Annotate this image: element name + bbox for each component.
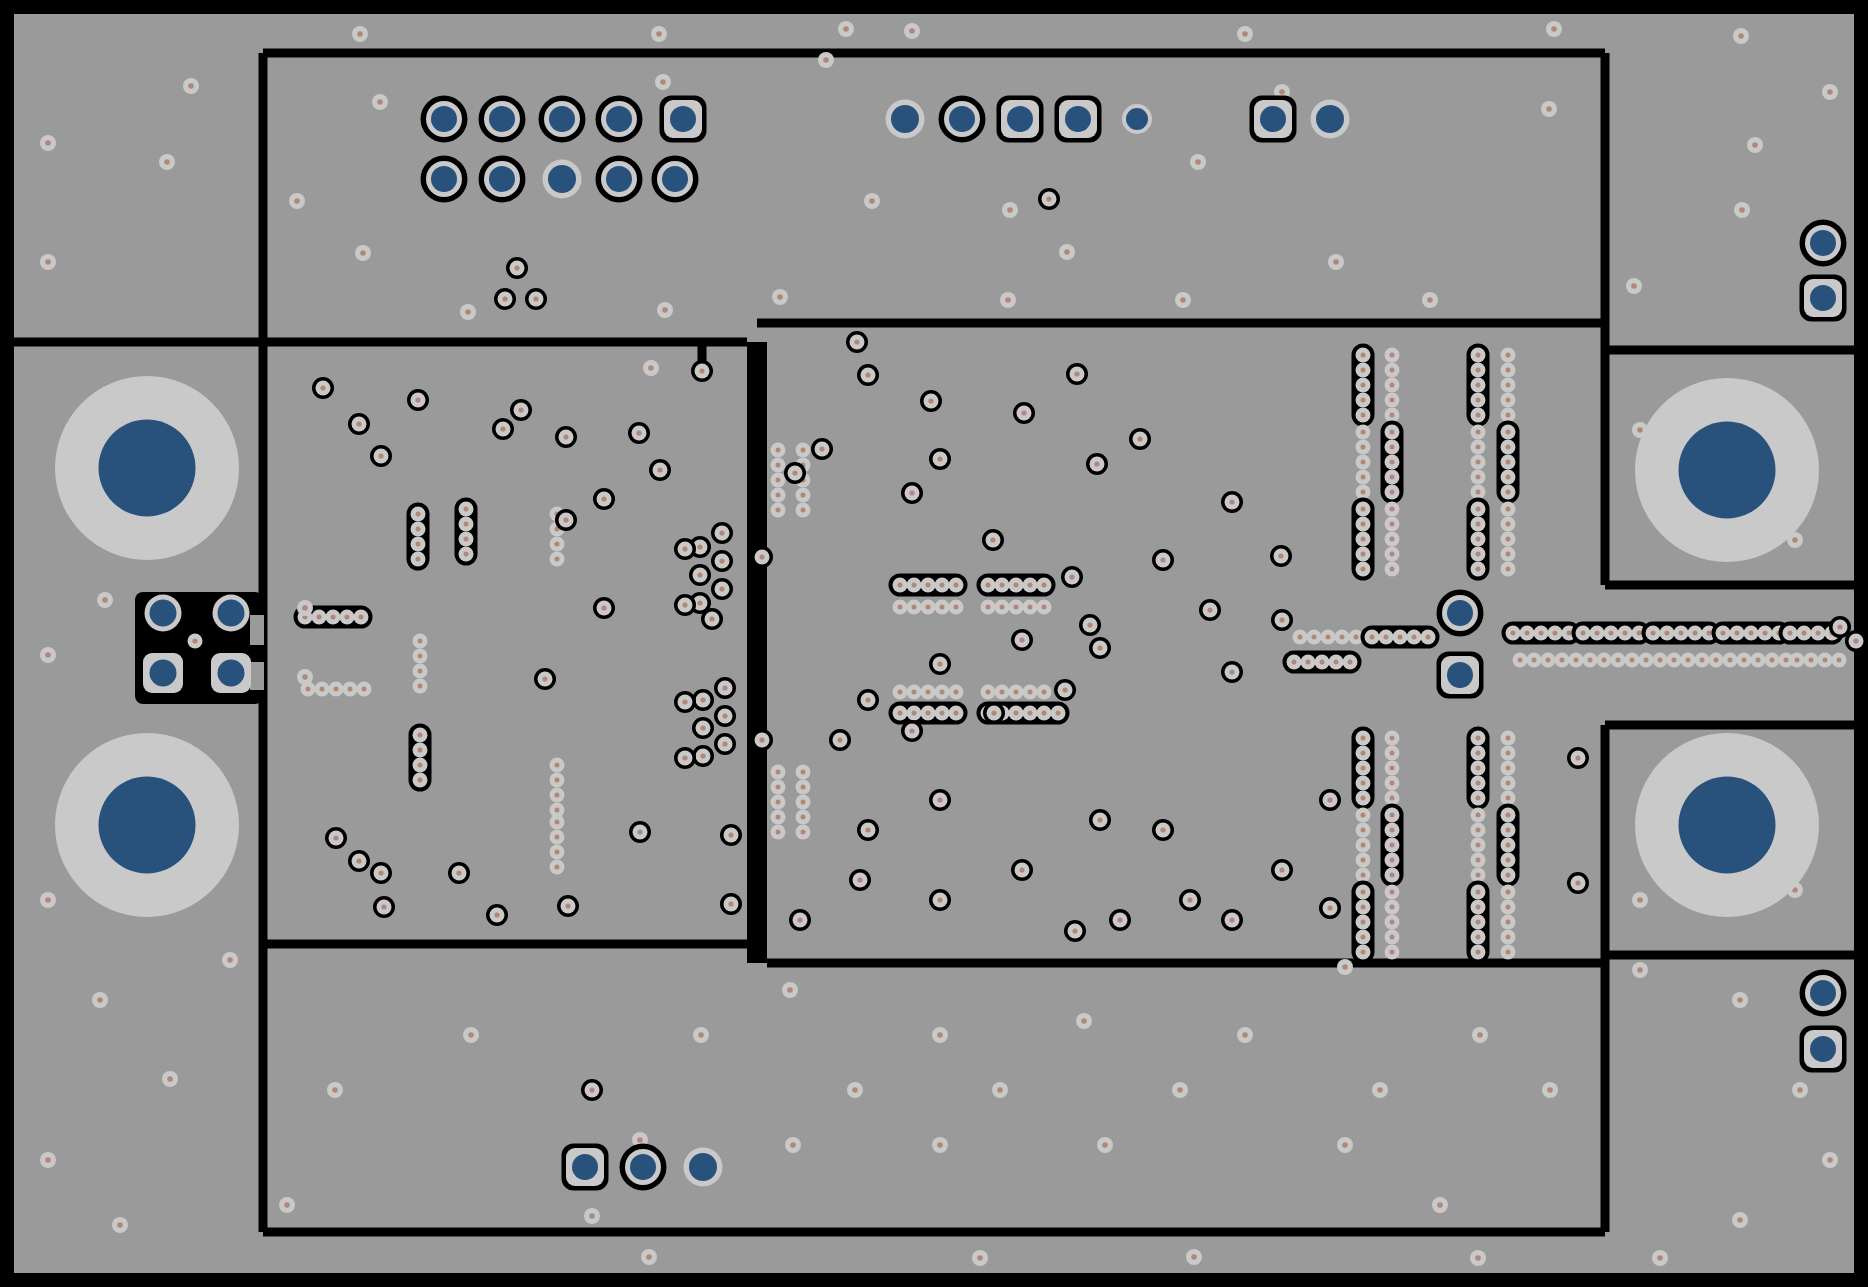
chain-via-drill (1567, 631, 1572, 636)
ring-via-drill (320, 385, 325, 390)
ring-via-drill (865, 697, 870, 702)
ring-via-drill (563, 517, 568, 522)
chain-via-drill (1476, 813, 1481, 818)
chain-via-drill (1476, 843, 1481, 848)
ring-via-drill (1021, 410, 1026, 415)
plain-via-drill (843, 26, 849, 32)
via-chain (1471, 425, 1486, 500)
plain-via-drill (1437, 1202, 1443, 1208)
pcb-layer-view[interactable] (0, 0, 1868, 1287)
chain-via-drill (418, 778, 423, 783)
plain-via-drill (1102, 1142, 1108, 1148)
chain-via-drill (1532, 658, 1537, 663)
chain-via-drill (1476, 950, 1481, 955)
ring-via-drill (1062, 687, 1067, 692)
chain-via-drill (1014, 690, 1019, 695)
chain-via-drill (464, 522, 469, 527)
ring-pad-hole (630, 1154, 656, 1180)
ring-via-drill (456, 870, 461, 875)
chain-via-drill (1602, 658, 1607, 663)
ring-via-drill (699, 368, 704, 373)
via-chain (301, 682, 372, 697)
ring-via-drill (1187, 897, 1192, 902)
chain-via-drill (1506, 413, 1511, 418)
via-chain (1501, 885, 1516, 960)
chain-via-drill (1749, 631, 1754, 636)
chain-via-drill (555, 778, 560, 783)
ring-via-drill (518, 407, 523, 412)
ring-via-drill (356, 858, 361, 863)
chain-via-drill (986, 605, 991, 610)
chain-via-drill (776, 830, 781, 835)
ring-pad-hole (431, 166, 457, 192)
plain-via-drill (1752, 142, 1758, 148)
ring-via-drill (792, 470, 797, 475)
chain-via-drill (1476, 552, 1481, 557)
chain-via-drill (801, 770, 806, 775)
plain-via-drill (1631, 283, 1637, 289)
plain-via-drill (777, 294, 783, 300)
chain-via-drill (776, 785, 781, 790)
ring-via-drill (728, 901, 733, 906)
ring-via-drill (1575, 880, 1580, 885)
plain-via-drill (164, 159, 170, 165)
chain-via-drill (898, 711, 903, 716)
chain-via-drill (1574, 658, 1579, 663)
chain-via-drill (1390, 950, 1395, 955)
ring-via-drill (722, 741, 727, 746)
chain-via-drill (1506, 751, 1511, 756)
ring-via-drill (682, 699, 687, 704)
plain-via-drill (852, 1087, 858, 1093)
chain-via-drill (416, 557, 421, 562)
chain-via-drill (1476, 537, 1481, 542)
ring-via-drill (500, 426, 505, 431)
ring-pad-hole (549, 106, 575, 132)
chain-via-drill (1326, 635, 1331, 640)
via-chain (1385, 348, 1400, 423)
plain-via-drill (377, 99, 383, 105)
chain-via-drill (1506, 828, 1511, 833)
ring-via-drill (192, 638, 197, 643)
via-chain (1653, 653, 1724, 668)
chain-via-drill (1700, 658, 1705, 663)
chain-via-drill (1056, 711, 1061, 716)
chain-via-drill (464, 552, 469, 557)
chain-via-drill (1361, 751, 1366, 756)
via-chain (1471, 808, 1486, 883)
chain-via-drill (320, 687, 325, 692)
chain-via-drill (1506, 796, 1511, 801)
connected-via-chain (407, 503, 430, 571)
plain-via-drill (1827, 89, 1833, 95)
chain-via-drill (776, 815, 781, 820)
chain-via-drill (555, 793, 560, 798)
plain-via-drill (332, 1087, 338, 1093)
chain-via-drill (1506, 398, 1511, 403)
mounting-hole-drill (1679, 422, 1776, 519)
ring-via-drill (709, 616, 714, 621)
plain-via-drill (589, 1213, 595, 1219)
chain-via-drill (1506, 736, 1511, 741)
chain-via-drill (1476, 796, 1481, 801)
ring-via-drill (1069, 574, 1074, 579)
chain-via-drill (1320, 660, 1325, 665)
plain-via-drill (1657, 1255, 1663, 1261)
ring-via-drill (1279, 617, 1284, 622)
chain-via-drill (1361, 460, 1366, 465)
chain-via-drill (1506, 873, 1511, 878)
plain-via-drill (1637, 897, 1643, 903)
chain-via-drill (555, 850, 560, 855)
plain-via-drill (1827, 1157, 1833, 1163)
chain-via-drill (1637, 631, 1642, 636)
chain-via-drill (1506, 475, 1511, 480)
ring-via-drill (1853, 638, 1858, 643)
chain-via-drill (1390, 813, 1395, 818)
chain-via-drill (464, 507, 469, 512)
chain-via-drill (317, 615, 322, 620)
plain-via-drill (302, 605, 308, 611)
chain-via-drill (1802, 631, 1807, 636)
ring-via-drill (589, 1087, 594, 1092)
plain-via-drill (360, 250, 366, 256)
cutout-square-pad-hole (150, 660, 177, 687)
chain-via-drill (1390, 430, 1395, 435)
chain-via-drill (1756, 658, 1761, 663)
connected-via-chain (1502, 622, 1581, 645)
ring-via-drill (700, 697, 705, 702)
chain-via-drill (1506, 813, 1511, 818)
chain-via-drill (555, 808, 560, 813)
chain-via-drill (801, 785, 806, 790)
chain-via-drill (1476, 905, 1481, 910)
ring-pad-hole (606, 106, 632, 132)
plain-via-drill (1333, 259, 1339, 265)
chain-via-drill (1672, 658, 1677, 663)
ring-pad-hole (606, 166, 632, 192)
chain-via-drill (1560, 658, 1565, 663)
chain-via-drill (1539, 631, 1544, 636)
chain-via-drill (1390, 552, 1395, 557)
ring-via-drill (514, 265, 519, 270)
ring-via-drill (1229, 669, 1234, 674)
plain-via-drill (660, 79, 666, 85)
plain-pad-hole (689, 1153, 717, 1181)
connected-via-chain (1352, 344, 1375, 427)
connected-via-chain (1381, 421, 1404, 504)
chain-via-drill (1361, 430, 1366, 435)
ring-via-drill (719, 586, 724, 591)
cutout-square-pad-hole (218, 660, 245, 687)
plain-via-drill (45, 897, 51, 903)
plain-via-drill (294, 198, 300, 204)
chain-via-drill (801, 830, 806, 835)
chain-via-drill (362, 687, 367, 692)
chain-via-drill (418, 684, 423, 689)
chain-via-drill (1609, 631, 1614, 636)
plain-via-drill (646, 1254, 652, 1260)
chain-via-drill (1686, 658, 1691, 663)
ring-via-drill (1575, 755, 1580, 760)
ring-via-drill (719, 558, 724, 563)
ring-via-drill (682, 755, 687, 760)
via-chain (1385, 731, 1400, 806)
plain-via-drill (102, 597, 108, 603)
chain-via-drill (1390, 522, 1395, 527)
ring-via-drill (657, 467, 662, 472)
chain-via-drill (940, 690, 945, 695)
chain-via-drill (912, 605, 917, 610)
chain-via-drill (1651, 631, 1656, 636)
ring-via-drill (1279, 867, 1284, 872)
plain-via-drill (1551, 26, 1557, 32)
ring-via-drill (990, 537, 995, 542)
chain-via-drill (1390, 828, 1395, 833)
chain-via-drill (464, 537, 469, 542)
ring-via-drill (697, 544, 702, 549)
ring-via-drill (533, 296, 538, 301)
chain-via-drill (416, 527, 421, 532)
chain-via-drill (1390, 781, 1395, 786)
chain-via-drill (1476, 475, 1481, 480)
chain-via-drill (1506, 430, 1511, 435)
connected-via-chain (1352, 881, 1375, 964)
connected-via-chain (1381, 804, 1404, 887)
chain-via-drill (898, 583, 903, 588)
chain-via-drill (1390, 507, 1395, 512)
chain-via-drill (1014, 711, 1019, 716)
chain-via-drill (1763, 631, 1768, 636)
chain-via-drill (1506, 890, 1511, 895)
chain-via-drill (1390, 751, 1395, 756)
chain-via-drill (1028, 583, 1033, 588)
chain-via-drill (1623, 631, 1628, 636)
chain-via-drill (1525, 631, 1530, 636)
chain-via-drill (1361, 935, 1366, 940)
plain-via-drill (1477, 1032, 1483, 1038)
chain-via-drill (954, 605, 959, 610)
chain-via-drill (1476, 507, 1481, 512)
chain-via-drill (776, 493, 781, 498)
chain-via-drill (331, 615, 336, 620)
ring-via-drill (378, 870, 383, 875)
chain-via-drill (1506, 567, 1511, 572)
ring-via-drill (502, 296, 507, 301)
chain-via-drill (1306, 660, 1311, 665)
via-chain (1356, 425, 1371, 500)
chain-via-drill (1361, 398, 1366, 403)
chain-via-drill (1518, 658, 1523, 663)
chain-via-drill (986, 690, 991, 695)
chain-via-drill (940, 711, 945, 716)
ring-via-drill (563, 434, 568, 439)
chain-via-drill (1028, 605, 1033, 610)
ring-via-drill (601, 496, 606, 501)
chain-via-drill (1742, 658, 1747, 663)
chain-via-drill (1511, 631, 1516, 636)
plain-via-drill (465, 309, 471, 315)
square-pad-hole (1810, 285, 1836, 311)
chain-via-drill (1506, 905, 1511, 910)
chain-via-drill (926, 711, 931, 716)
chain-via-drill (1390, 796, 1395, 801)
ring-via-drill (909, 490, 914, 495)
plain-via-drill (468, 1032, 474, 1038)
chain-via-drill (1506, 781, 1511, 786)
ring-via-drill (719, 530, 724, 535)
chain-via-drill (1000, 605, 1005, 610)
ring-pad-hole (489, 166, 515, 192)
plain-via-drill (45, 1157, 51, 1163)
via-chain (771, 443, 786, 518)
chain-via-drill (1361, 828, 1366, 833)
chain-via-drill (1735, 631, 1740, 636)
chain-via-drill (1630, 658, 1635, 663)
chain-via-drill (1506, 353, 1511, 358)
chain-via-drill (345, 615, 350, 620)
via-chain (1723, 653, 1794, 668)
chain-via-drill (1476, 430, 1481, 435)
chain-via-drill (1476, 781, 1481, 786)
ring-via-drill (565, 903, 570, 908)
chain-via-drill (1312, 635, 1317, 640)
chain-via-drill (1361, 920, 1366, 925)
ring-via-drill (1229, 917, 1234, 922)
chain-via-drill (1476, 751, 1481, 756)
ring-via-drill (1207, 607, 1212, 612)
plain-via-drill (1547, 1087, 1553, 1093)
chain-via-drill (1476, 828, 1481, 833)
plain-via-drill (637, 1137, 643, 1143)
chain-via-drill (418, 733, 423, 738)
chain-via-drill (1658, 658, 1663, 663)
chain-via-drill (1390, 413, 1395, 418)
chain-via-drill (555, 865, 560, 870)
square-pad-hole (572, 1154, 598, 1180)
ring-via-drill (865, 827, 870, 832)
chain-via-drill (1398, 635, 1403, 640)
plain-pad-hole (548, 165, 576, 193)
chain-via-drill (1823, 658, 1828, 663)
ring-via-drill (1229, 499, 1234, 504)
chain-via-drill (1361, 552, 1366, 557)
chain-via-drill (1361, 507, 1366, 512)
square-pad-hole (1447, 662, 1473, 688)
plain-via-drill (97, 997, 103, 1003)
chain-via-drill (1679, 631, 1684, 636)
ring-via-drill (682, 602, 687, 607)
connected-via-chain (889, 702, 968, 725)
chain-via-drill (1390, 383, 1395, 388)
ring-via-drill (819, 446, 824, 451)
chain-via-drill (801, 800, 806, 805)
plain-via-drill (1377, 1087, 1383, 1093)
plain-via-drill (1792, 537, 1798, 543)
chain-via-drill (1581, 631, 1586, 636)
plain-via-drill (1081, 1018, 1087, 1024)
connected-via-chain (1283, 651, 1362, 674)
ring-via-drill (333, 835, 338, 840)
ring-via-drill (542, 676, 547, 681)
cutout-circle-pad-hole (218, 600, 245, 627)
plain-via-drill (45, 259, 51, 265)
chain-via-drill (1476, 490, 1481, 495)
chain-via-drill (1042, 711, 1047, 716)
chain-via-drill (1042, 583, 1047, 588)
plain-via-drill (869, 198, 875, 204)
chain-via-drill (1390, 858, 1395, 863)
ring-via-drill (865, 372, 870, 377)
plain-via-drill (656, 31, 662, 37)
chain-via-drill (1476, 353, 1481, 358)
chain-via-drill (1770, 658, 1775, 663)
chain-via-drill (1334, 660, 1339, 665)
ring-via-drill (1327, 905, 1332, 910)
ring-via-drill (722, 685, 727, 690)
chain-via-drill (1000, 583, 1005, 588)
via-chain (796, 765, 811, 840)
connected-via-chain (1352, 498, 1375, 581)
ring-via-drill (494, 912, 499, 917)
mounting-hole-drill (99, 420, 196, 517)
chain-via-drill (776, 478, 781, 483)
plain-via-drill (1005, 297, 1011, 303)
chain-via-drill (1348, 660, 1353, 665)
chain-via-drill (555, 820, 560, 825)
copper-divider (747, 342, 767, 963)
plain-via-drill (662, 307, 668, 313)
chain-via-drill (1361, 368, 1366, 373)
chain-via-drill (1506, 950, 1511, 955)
chain-via-drill (1390, 920, 1395, 925)
chain-via-drill (1644, 658, 1649, 663)
ring-via-drill (1097, 817, 1102, 822)
ring-via-drill (1087, 622, 1092, 627)
chain-via-drill (1788, 631, 1793, 636)
ring-via-drill (1019, 637, 1024, 642)
chain-via-drill (418, 748, 423, 753)
cutout-circle-pad-hole (150, 600, 177, 627)
chain-via-drill (801, 508, 806, 513)
mounting-hole-drill (1679, 777, 1776, 874)
plain-via-drill (1427, 297, 1433, 303)
chain-via-drill (1390, 537, 1395, 542)
chain-via-drill (1837, 658, 1842, 663)
ring-via-drill (637, 829, 642, 834)
chain-via-drill (1354, 635, 1359, 640)
chain-via-drill (1042, 690, 1047, 695)
chain-via-drill (1476, 413, 1481, 418)
chain-via-drill (1361, 813, 1366, 818)
chain-via-drill (1553, 631, 1558, 636)
square-pad-hole (1007, 106, 1033, 132)
chain-via-drill (555, 557, 560, 562)
pcb-canvas[interactable] (0, 0, 1868, 1287)
chain-via-drill (1361, 796, 1366, 801)
connected-via-chain (1497, 421, 1520, 504)
chain-via-drill (1476, 920, 1481, 925)
plain-via-drill (1546, 106, 1552, 112)
chain-via-drill (1390, 445, 1395, 450)
plain-via-drill (1007, 207, 1013, 213)
ring-via-drill (682, 546, 687, 551)
chain-via-drill (1370, 635, 1375, 640)
ring-via-drill (378, 453, 383, 458)
chain-via-drill (1390, 368, 1395, 373)
ring-via-drill (991, 710, 996, 715)
via-chain (981, 685, 1052, 700)
